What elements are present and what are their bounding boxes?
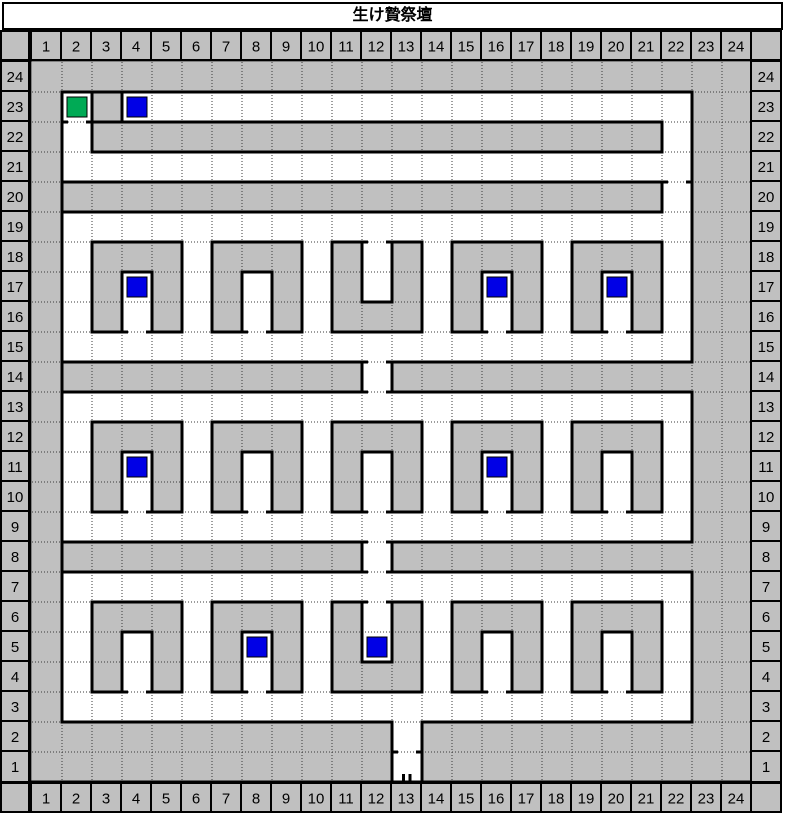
solid-cell	[572, 422, 602, 452]
solid-cell	[32, 542, 62, 572]
solid-cell	[572, 722, 602, 752]
solid-cell	[482, 182, 512, 212]
solid-cell	[152, 542, 182, 572]
solid-cell	[152, 602, 182, 632]
solid-cell	[722, 242, 752, 272]
solid-cell	[62, 722, 92, 752]
solid-cell	[212, 722, 242, 752]
solid-cell	[422, 752, 452, 782]
solid-cell	[242, 362, 272, 392]
solid-cell	[542, 362, 572, 392]
col-header-label: 13	[398, 39, 415, 56]
solid-cell	[662, 722, 692, 752]
marker-blue	[247, 637, 267, 657]
solid-cell	[272, 62, 302, 92]
solid-cell	[92, 422, 122, 452]
solid-cell	[362, 722, 392, 752]
solid-cell	[32, 662, 62, 692]
solid-cell	[122, 182, 152, 212]
solid-cell	[122, 242, 152, 272]
solid-cell	[182, 542, 212, 572]
solid-cell	[92, 752, 122, 782]
solid-cell	[122, 542, 152, 572]
solid-cell	[332, 752, 362, 782]
solid-cell	[62, 362, 92, 392]
solid-cell	[242, 542, 272, 572]
solid-cell	[602, 722, 632, 752]
col-header-label: 10	[308, 791, 325, 808]
solid-cell	[452, 242, 482, 272]
solid-cell	[662, 542, 692, 572]
solid-cell	[362, 422, 392, 452]
solid-cell	[32, 392, 62, 422]
corner-cell	[1, 783, 29, 812]
solid-cell	[182, 62, 212, 92]
col-header-label: 15	[458, 791, 475, 808]
solid-cell	[362, 662, 392, 692]
row-label-label: 14	[758, 369, 775, 386]
solid-cell	[152, 62, 182, 92]
solid-cell	[722, 512, 752, 542]
row-label-label: 21	[7, 159, 24, 176]
col-header-label: 13	[398, 791, 415, 808]
solid-cell	[122, 362, 152, 392]
solid-cell	[272, 242, 302, 272]
solid-cell	[572, 362, 602, 392]
solid-cell	[212, 362, 242, 392]
row-label-label: 11	[7, 459, 23, 476]
solid-cell	[392, 422, 422, 452]
solid-cell	[32, 572, 62, 602]
marker-blue	[367, 637, 387, 657]
col-header-label: 5	[162, 39, 170, 56]
col-header-label: 22	[668, 39, 685, 56]
solid-cell	[392, 452, 422, 482]
corner-cell	[1, 31, 29, 60]
row-label-label: 18	[758, 249, 775, 266]
solid-cell	[92, 302, 122, 332]
solid-cell	[152, 452, 182, 482]
row-label-label: 8	[11, 549, 19, 566]
solid-cell	[152, 632, 182, 662]
solid-cell	[32, 632, 62, 662]
solid-cell	[302, 362, 332, 392]
solid-cell	[32, 332, 62, 362]
solid-cell	[452, 62, 482, 92]
solid-cell	[242, 62, 272, 92]
solid-cell	[572, 182, 602, 212]
row-label-label: 15	[7, 339, 24, 356]
col-header-label: 2	[72, 39, 80, 56]
solid-cell	[722, 752, 752, 782]
solid-cell	[32, 452, 62, 482]
solid-cell	[392, 122, 422, 152]
solid-cell	[212, 452, 242, 482]
solid-cell	[332, 662, 362, 692]
col-header-label: 21	[638, 39, 655, 56]
row-label-label: 12	[758, 429, 775, 446]
solid-cell	[632, 602, 662, 632]
col-header-label: 23	[698, 39, 715, 56]
solid-cell	[212, 632, 242, 662]
row-label-label: 3	[762, 699, 770, 716]
solid-cell	[32, 602, 62, 632]
solid-cell	[602, 422, 632, 452]
solid-cell	[272, 182, 302, 212]
solid-cell	[632, 122, 662, 152]
solid-cell	[722, 422, 752, 452]
solid-cell	[572, 632, 602, 662]
solid-cell	[692, 572, 722, 602]
corner-cell	[751, 783, 781, 812]
row-label-label: 17	[758, 279, 775, 296]
solid-cell	[722, 392, 752, 422]
row-label-label: 12	[7, 429, 24, 446]
col-header-label: 24	[728, 39, 745, 56]
solid-cell	[152, 362, 182, 392]
row-label-label: 1	[11, 759, 19, 776]
solid-cell	[572, 482, 602, 512]
solid-cell	[272, 752, 302, 782]
col-header-label: 14	[428, 791, 445, 808]
col-header-label: 9	[282, 791, 290, 808]
solid-cell	[692, 542, 722, 572]
solid-cell	[422, 722, 452, 752]
corner-cell	[751, 31, 781, 60]
solid-cell	[722, 182, 752, 212]
solid-cell	[512, 482, 542, 512]
solid-cell	[452, 632, 482, 662]
row-label-label: 19	[7, 219, 24, 236]
row-label-label: 15	[758, 339, 775, 356]
solid-cell	[722, 662, 752, 692]
solid-cell	[602, 602, 632, 632]
solid-cell	[122, 422, 152, 452]
solid-cell	[332, 362, 362, 392]
solid-cell	[722, 722, 752, 752]
col-header-label: 1	[42, 791, 50, 808]
solid-cell	[452, 362, 482, 392]
row-label-label: 1	[762, 759, 770, 776]
col-header-label: 19	[578, 39, 595, 56]
solid-cell	[92, 242, 122, 272]
solid-cell	[62, 542, 92, 572]
solid-cell	[242, 122, 272, 152]
solid-cell	[602, 122, 632, 152]
solid-cell	[212, 272, 242, 302]
solid-cell	[632, 632, 662, 662]
solid-cell	[272, 122, 302, 152]
solid-cell	[122, 62, 152, 92]
solid-cell	[512, 272, 542, 302]
row-label-label: 20	[758, 189, 775, 206]
solid-cell	[602, 62, 632, 92]
solid-cell	[572, 662, 602, 692]
solid-cell	[452, 452, 482, 482]
solid-cell	[32, 242, 62, 272]
col-header-label: 3	[102, 39, 110, 56]
solid-cell	[212, 662, 242, 692]
solid-cell	[602, 242, 632, 272]
row-label-label: 14	[7, 369, 24, 386]
solid-cell	[692, 392, 722, 422]
col-header-label: 9	[282, 39, 290, 56]
solid-cell	[632, 422, 662, 452]
solid-cell	[272, 722, 302, 752]
row-label-label: 22	[7, 129, 24, 146]
solid-cell	[692, 182, 722, 212]
col-header-label: 16	[488, 39, 505, 56]
solid-cell	[272, 362, 302, 392]
solid-cell	[32, 362, 62, 392]
solid-cell	[542, 62, 572, 92]
solid-cell	[332, 632, 362, 662]
solid-cell	[542, 542, 572, 572]
solid-cell	[542, 752, 572, 782]
solid-cell	[572, 62, 602, 92]
solid-cell	[632, 182, 662, 212]
solid-cell	[482, 602, 512, 632]
solid-cell	[572, 752, 602, 782]
col-header-label: 15	[458, 39, 475, 56]
solid-cell	[542, 722, 572, 752]
solid-cell	[722, 692, 752, 722]
solid-cell	[632, 452, 662, 482]
row-label-label: 16	[758, 309, 775, 326]
solid-cell	[692, 212, 722, 242]
col-header-label: 7	[222, 39, 230, 56]
solid-cell	[242, 752, 272, 782]
solid-cell	[722, 302, 752, 332]
row-label-label: 3	[11, 699, 19, 716]
solid-cell	[452, 122, 482, 152]
solid-cell	[92, 272, 122, 302]
solid-cell	[272, 602, 302, 632]
row-label-label: 10	[7, 489, 24, 506]
solid-cell	[242, 182, 272, 212]
col-header-label: 23	[698, 791, 715, 808]
solid-cell	[32, 272, 62, 302]
solid-cell	[212, 302, 242, 332]
col-header-label: 8	[252, 39, 260, 56]
solid-cell	[572, 452, 602, 482]
solid-cell	[452, 182, 482, 212]
row-label-label: 5	[11, 639, 19, 656]
solid-cell	[272, 542, 302, 572]
solid-cell	[632, 752, 662, 782]
solid-cell	[632, 662, 662, 692]
solid-cell	[392, 272, 422, 302]
solid-cell	[32, 92, 62, 122]
col-header-label: 2	[72, 791, 80, 808]
solid-cell	[332, 722, 362, 752]
row-label-label: 5	[762, 639, 770, 656]
solid-cell	[692, 152, 722, 182]
row-label-label: 20	[7, 189, 24, 206]
row-label-label: 24	[7, 69, 24, 86]
solid-cell	[392, 242, 422, 272]
solid-cell	[212, 602, 242, 632]
solid-cell	[572, 302, 602, 332]
map-title-bar: 生け贄祭壇	[2, 2, 783, 30]
row-label-label: 23	[758, 99, 775, 116]
solid-cell	[62, 752, 92, 782]
col-header-label: 11	[338, 791, 354, 808]
solid-cell	[32, 752, 62, 782]
solid-cell	[692, 602, 722, 632]
solid-cell	[512, 182, 542, 212]
solid-cell	[632, 542, 662, 572]
solid-cell	[122, 122, 152, 152]
solid-cell	[452, 752, 482, 782]
solid-cell	[152, 752, 182, 782]
solid-cell	[152, 272, 182, 302]
col-header-label: 20	[608, 39, 625, 56]
solid-cell	[272, 422, 302, 452]
solid-cell	[722, 212, 752, 242]
solid-cell	[512, 62, 542, 92]
solid-cell	[92, 122, 122, 152]
marker-blue	[487, 457, 507, 477]
col-header-label: 14	[428, 39, 445, 56]
solid-cell	[452, 722, 482, 752]
solid-cell	[302, 752, 332, 782]
solid-cell	[332, 182, 362, 212]
row-label-label: 19	[758, 219, 775, 236]
row-label-label: 9	[762, 519, 770, 536]
row-label-label: 4	[762, 669, 770, 686]
solid-cell	[62, 62, 92, 92]
solid-cell	[212, 422, 242, 452]
solid-cell	[482, 122, 512, 152]
solid-cell	[32, 122, 62, 152]
solid-cell	[722, 542, 752, 572]
marker-blue	[127, 97, 147, 117]
solid-cell	[722, 122, 752, 152]
solid-cell	[332, 452, 362, 482]
solid-cell	[722, 332, 752, 362]
solid-cell	[602, 182, 632, 212]
solid-cell	[692, 752, 722, 782]
solid-cell	[662, 362, 692, 392]
solid-cell	[512, 122, 542, 152]
dungeon-map-page: 1122334455667788991010111112121313141415…	[0, 0, 785, 815]
marker-blue	[127, 277, 147, 297]
solid-cell	[242, 422, 272, 452]
solid-cell	[32, 62, 62, 92]
col-header-label: 21	[638, 791, 655, 808]
solid-cell	[722, 92, 752, 122]
solid-cell	[32, 482, 62, 512]
solid-cell	[692, 242, 722, 272]
solid-cell	[512, 542, 542, 572]
solid-cell	[362, 122, 392, 152]
col-header-label: 11	[338, 39, 354, 56]
col-header-label: 1	[42, 39, 50, 56]
solid-cell	[122, 752, 152, 782]
col-header-label: 6	[192, 791, 200, 808]
solid-cell	[152, 722, 182, 752]
solid-cell	[422, 62, 452, 92]
solid-cell	[572, 242, 602, 272]
solid-cell	[452, 542, 482, 572]
solid-cell	[32, 722, 62, 752]
solid-cell	[482, 752, 512, 782]
row-label-label: 22	[758, 129, 775, 146]
solid-cell	[332, 602, 362, 632]
solid-cell	[32, 422, 62, 452]
solid-cell	[512, 602, 542, 632]
solid-cell	[722, 62, 752, 92]
row-label-label: 21	[758, 159, 775, 176]
solid-cell	[482, 242, 512, 272]
solid-cell	[362, 182, 392, 212]
solid-cell	[122, 602, 152, 632]
solid-cell	[332, 62, 362, 92]
solid-cell	[332, 272, 362, 302]
solid-cell	[392, 302, 422, 332]
solid-cell	[92, 92, 122, 122]
solid-cell	[392, 62, 422, 92]
col-header-label: 7	[222, 791, 230, 808]
solid-cell	[632, 362, 662, 392]
solid-cell	[722, 602, 752, 632]
row-label-label: 17	[7, 279, 24, 296]
solid-cell	[722, 572, 752, 602]
solid-cell	[302, 62, 332, 92]
solid-cell	[32, 212, 62, 242]
solid-cell	[182, 122, 212, 152]
solid-cell	[272, 272, 302, 302]
col-header-label: 20	[608, 791, 625, 808]
solid-cell	[362, 752, 392, 782]
solid-cell	[512, 422, 542, 452]
col-header-label: 22	[668, 791, 685, 808]
col-header-label: 12	[368, 791, 385, 808]
solid-cell	[92, 482, 122, 512]
solid-cell	[212, 482, 242, 512]
solid-cell	[212, 752, 242, 782]
solid-cell	[302, 542, 332, 572]
solid-cell	[182, 182, 212, 212]
solid-cell	[692, 362, 722, 392]
solid-cell	[92, 632, 122, 662]
solid-cell	[512, 242, 542, 272]
solid-cell	[632, 62, 662, 92]
solid-cell	[692, 452, 722, 482]
solid-cell	[512, 632, 542, 662]
solid-cell	[332, 302, 362, 332]
solid-cell	[212, 122, 242, 152]
solid-cell	[722, 362, 752, 392]
solid-cell	[152, 662, 182, 692]
solid-cell	[482, 62, 512, 92]
solid-cell	[32, 512, 62, 542]
solid-cell	[692, 722, 722, 752]
solid-cell	[332, 542, 362, 572]
solid-cell	[122, 722, 152, 752]
row-label-label: 23	[7, 99, 24, 116]
solid-cell	[692, 422, 722, 452]
solid-cell	[362, 62, 392, 92]
row-label-label: 11	[758, 459, 774, 476]
solid-cell	[662, 62, 692, 92]
row-label-label: 18	[7, 249, 24, 266]
solid-cell	[632, 302, 662, 332]
solid-cell	[92, 362, 122, 392]
solid-cell	[452, 272, 482, 302]
solid-cell	[92, 542, 122, 572]
